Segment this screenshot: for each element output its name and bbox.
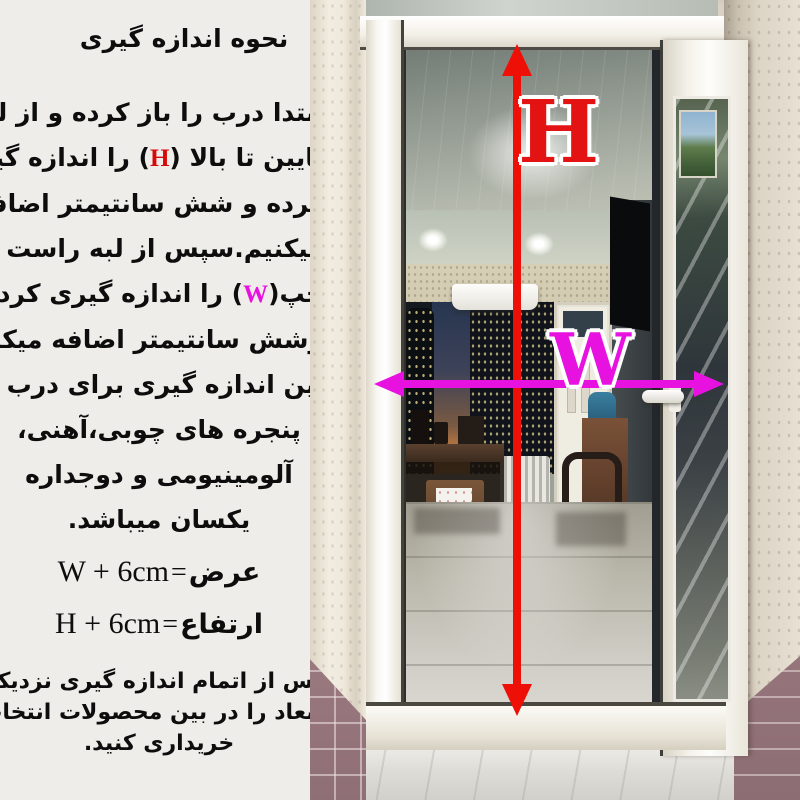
door-photo: H W bbox=[310, 0, 800, 800]
instructions-paragraph: ابتدا درب را باز کرده و از لبه پایین تا … bbox=[0, 90, 324, 542]
air-conditioner bbox=[452, 284, 538, 310]
page-title: نحوه اندازه گیری bbox=[58, 24, 310, 53]
width-formula-equals: = bbox=[169, 557, 189, 588]
width-arrow-label: W bbox=[550, 324, 631, 396]
footer-line-3: خریداری کنید. bbox=[0, 728, 322, 759]
doorframe-bottom bbox=[366, 702, 726, 750]
height-formula-label: ارتفاع bbox=[180, 609, 263, 640]
height-symbol-inline: H bbox=[150, 145, 169, 172]
height-arrow-head-up bbox=[502, 44, 532, 76]
wall-tv bbox=[610, 196, 650, 331]
instruction-line-7: این اندازه گیری برای درب و bbox=[0, 362, 324, 407]
width-formula: عرض=W + 6cm bbox=[0, 546, 318, 598]
height-arrow-head-down bbox=[502, 684, 532, 716]
floor-reflection bbox=[556, 512, 626, 546]
width-formula-value: W + 6cm bbox=[58, 555, 169, 588]
width-formula-label: عرض bbox=[189, 557, 261, 588]
instruction-line-4: میکنیم.سپس از لبه راست تا bbox=[0, 226, 324, 271]
desk-items bbox=[458, 416, 484, 444]
width-arrow-head-right bbox=[694, 371, 724, 397]
desk bbox=[406, 444, 504, 462]
instruction-line-5: چپ(W) را اندازه گیری کرده bbox=[0, 271, 324, 317]
door-handle bbox=[642, 390, 684, 403]
instruction-line-8: پنجره های چوبی،آهنی، bbox=[0, 407, 324, 452]
desk-silhouette bbox=[411, 410, 429, 444]
floor-reflection bbox=[414, 508, 500, 534]
footer-line-2: ابعاد را در بین محصولات انتخاب و bbox=[0, 697, 322, 728]
height-arrow-label: H bbox=[518, 90, 599, 176]
line-5-post: ) را اندازه گیری کرده bbox=[0, 279, 243, 308]
formulas-block: عرض=W + 6cm ارتفاع=H + 6cm bbox=[0, 546, 318, 650]
instruction-line-10: یکسان میباشد. bbox=[0, 497, 324, 542]
width-arrow-line bbox=[402, 380, 696, 388]
instruction-line-1: ابتدا درب را باز کرده و از لبه bbox=[0, 90, 324, 135]
mug bbox=[434, 422, 448, 444]
line-2-post: ) را اندازه گیری bbox=[0, 143, 150, 172]
width-symbol-inline: W bbox=[243, 281, 268, 308]
ceiling-lamp bbox=[524, 232, 554, 256]
landscape-picture bbox=[679, 110, 717, 178]
instruction-line-3: کرده و شش سانتیمتر اضافه bbox=[0, 181, 324, 226]
line-2-pre: پایین تا بالا ( bbox=[169, 143, 324, 172]
instruction-line-6: وشش سانتیمتر اضافه میکنیم. bbox=[0, 317, 324, 362]
footer-line-1: پس از اتمام اندازه گیری نزدیکترین bbox=[0, 666, 322, 697]
width-arrow-head-left bbox=[374, 371, 404, 397]
instructions-panel: نحوه اندازه گیری ابتدا درب را باز کرده و… bbox=[0, 0, 318, 800]
instruction-line-9: آلومینیومی و دوجداره bbox=[0, 452, 324, 497]
exterior-wall-left bbox=[310, 0, 366, 762]
open-door-panel bbox=[660, 40, 748, 756]
footer-note: پس از اتمام اندازه گیری نزدیکترین ابعاد … bbox=[0, 666, 322, 759]
height-formula-value: H + 6cm bbox=[55, 607, 160, 640]
height-formula: ارتفاع=H + 6cm bbox=[0, 598, 318, 650]
instruction-line-2: پایین تا بالا (H) را اندازه گیری bbox=[0, 135, 324, 181]
height-formula-equals: = bbox=[160, 609, 180, 640]
ceiling-lamp bbox=[418, 228, 448, 252]
